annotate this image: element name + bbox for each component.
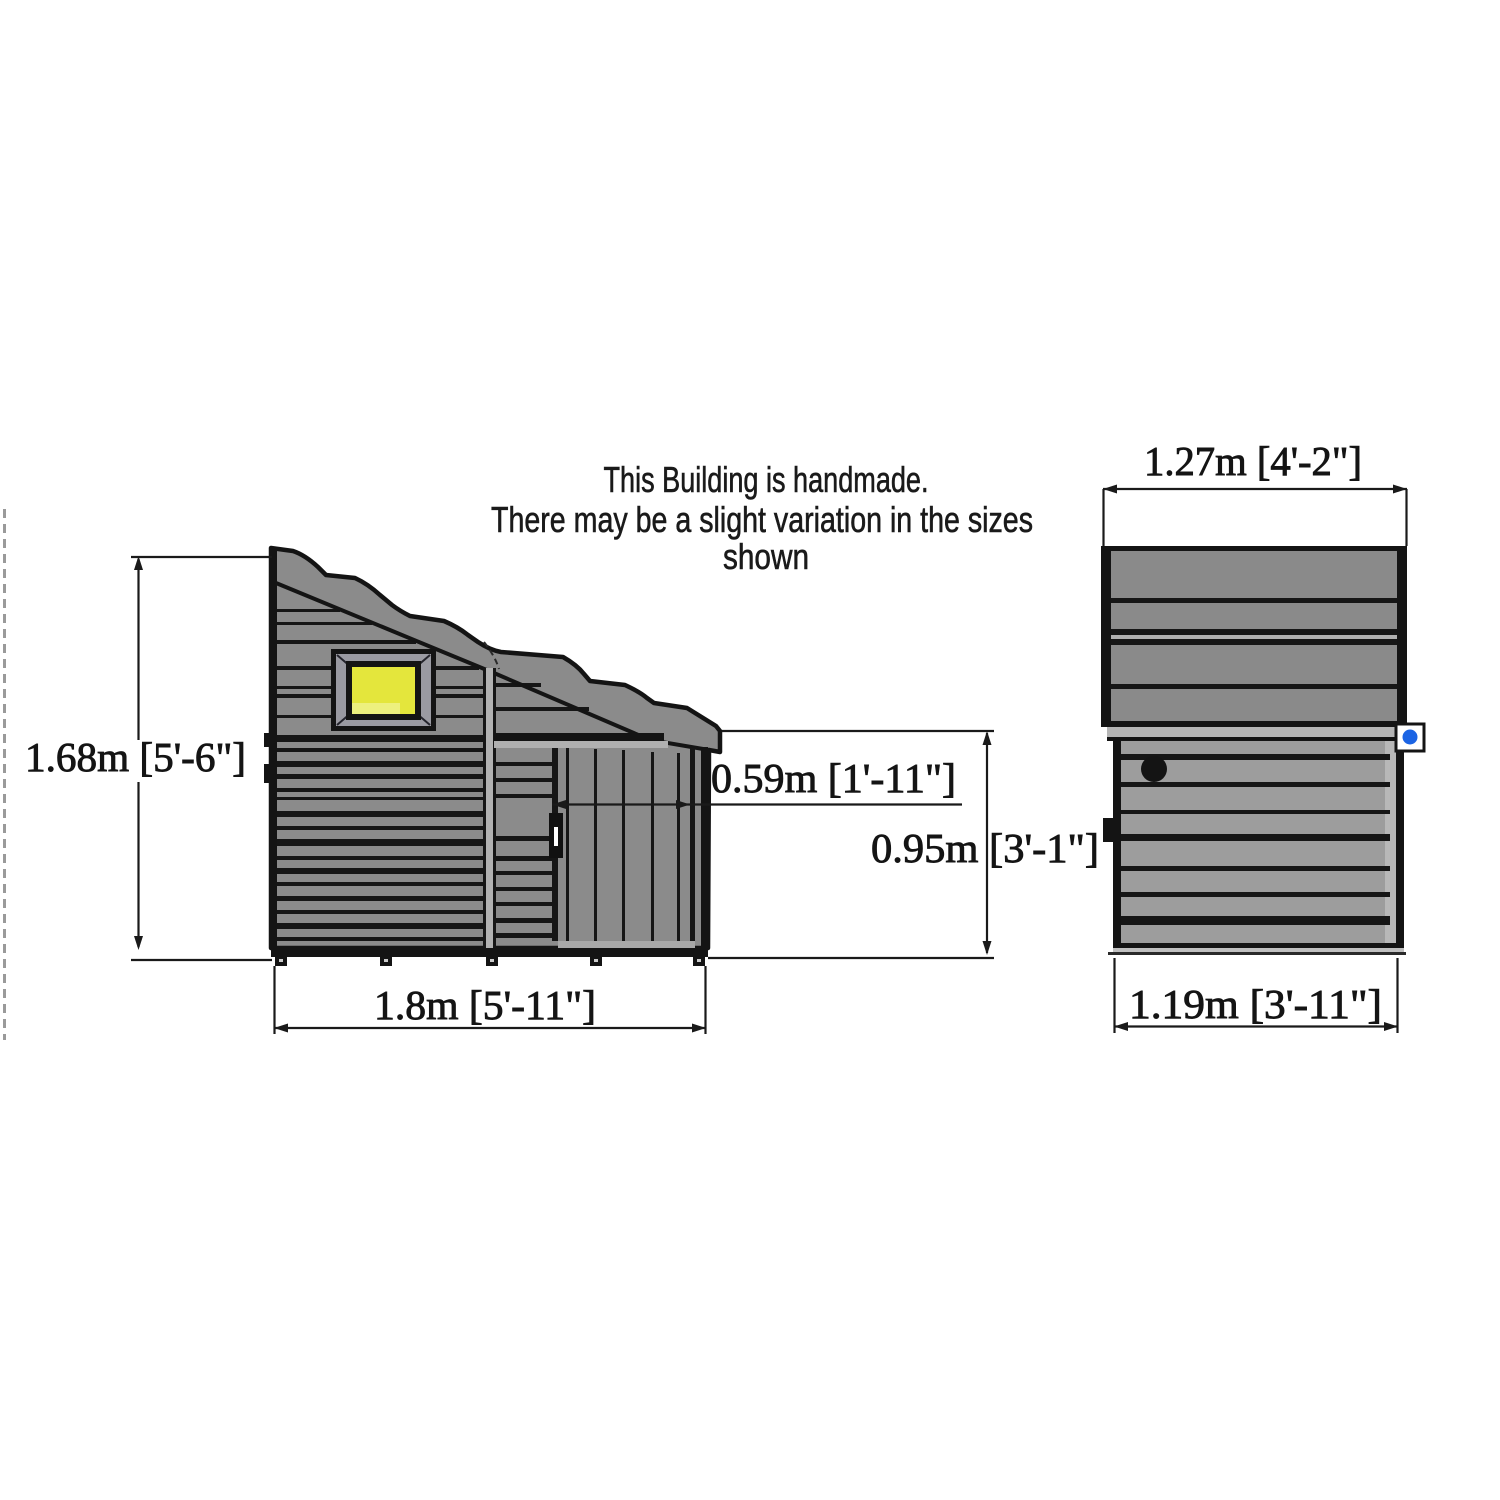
svg-text:1.68m [5'-6"]: 1.68m [5'-6"] (25, 734, 246, 780)
svg-text:shown: shown (723, 536, 809, 577)
svg-text:0.95m [3'-1"]: 0.95m [3'-1"] (871, 825, 1099, 871)
svg-text:0.59m [1'-11"]: 0.59m [1'-11"] (711, 755, 956, 801)
svg-text:1.27m [4'-2"]: 1.27m [4'-2"] (1144, 438, 1362, 484)
svg-text:1.8m [5'-11"]: 1.8m [5'-11"] (374, 982, 596, 1028)
svg-text:1.19m [3'-11"]: 1.19m [3'-11"] (1129, 981, 1382, 1027)
svg-text:This Building is handmade.: This Building is handmade. (604, 459, 929, 500)
svg-text:There may be a slight variatio: There may be a slight variation in the s… (491, 499, 1033, 540)
